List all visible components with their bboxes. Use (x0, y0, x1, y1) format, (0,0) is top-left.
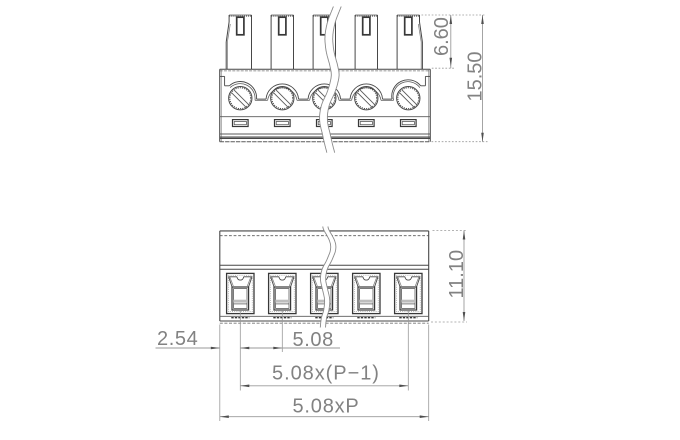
svg-text:5.08: 5.08 (293, 329, 334, 351)
svg-text:6.60: 6.60 (431, 17, 453, 56)
svg-text:15.50: 15.50 (464, 51, 486, 101)
svg-text:2.54: 2.54 (157, 328, 198, 350)
svg-text:11.10: 11.10 (446, 250, 468, 299)
svg-text:5.08xP: 5.08xP (293, 395, 360, 417)
svg-text:5.08x(P−1): 5.08x(P−1) (272, 363, 380, 385)
